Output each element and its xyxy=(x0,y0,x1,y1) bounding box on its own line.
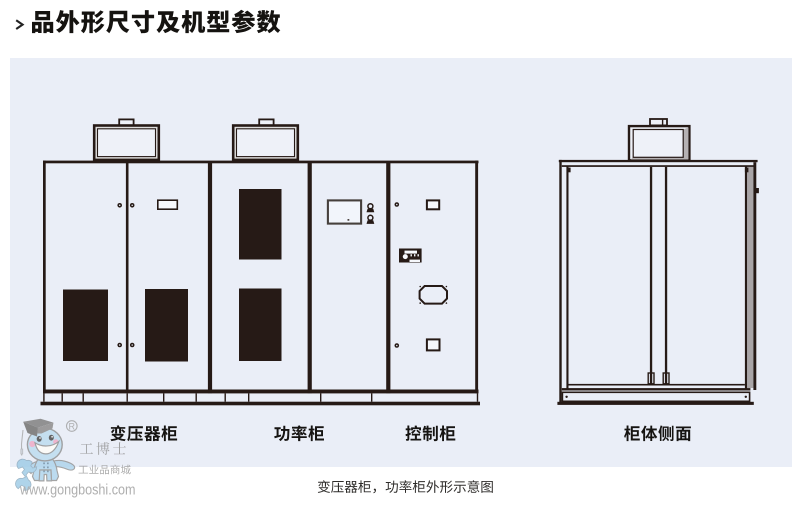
svg-text:R: R xyxy=(69,422,76,432)
svg-text:www.gongboshi.com: www.gongboshi.com xyxy=(19,482,135,499)
